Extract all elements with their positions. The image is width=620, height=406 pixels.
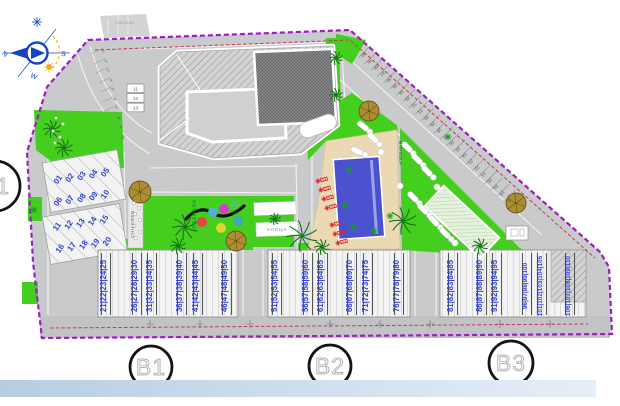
circle xyxy=(515,202,517,204)
playground-equipment-dot xyxy=(219,204,229,214)
pool xyxy=(333,156,384,239)
garage-block-b2 xyxy=(268,250,410,317)
playground-equipment-dot xyxy=(197,217,207,227)
compass-w-label: W xyxy=(29,72,38,81)
parking-number: 86|87|88|89|90 xyxy=(475,259,484,312)
street-rect-label: УЛИЦА xyxy=(267,227,287,233)
parking-number: 12 xyxy=(133,96,139,101)
axis-circle-left-label: B1 xyxy=(0,173,10,199)
site-plan-drawing: 12345678910 111213 010203040506070809101… xyxy=(0,0,620,406)
parking-number: 11 xyxy=(133,86,138,91)
parking-number: 41|42|43|44|45 xyxy=(191,259,200,312)
parking-number: 36|37|38|39|40 xyxy=(175,259,184,312)
parking-number: 51|52|53|54|55 xyxy=(270,259,279,312)
minigolf-lane xyxy=(378,149,384,155)
bush-icon xyxy=(342,202,349,209)
pebble xyxy=(62,123,65,126)
pebble xyxy=(139,231,142,234)
sun-icon xyxy=(44,62,55,73)
bush-icon xyxy=(350,224,357,231)
children-label: CHILDREN xyxy=(130,210,135,238)
compass-rose: N S W xyxy=(0,17,70,82)
circle xyxy=(368,110,370,112)
granada-label: GRANADA xyxy=(192,199,198,229)
axis-circle-b2-label: B2 xyxy=(315,353,345,379)
minigolf-lane xyxy=(434,184,440,190)
tree-icon xyxy=(359,101,379,121)
parking-number: 13 xyxy=(133,106,139,111)
axis-circle-b1-label: B1 xyxy=(136,354,166,380)
tree-icon xyxy=(129,181,151,203)
parking-number: 101|102|103|104|105 xyxy=(537,255,544,316)
parking-number: 106|107|108|109|110 xyxy=(565,256,572,317)
compass-n-label: N xyxy=(0,50,8,59)
minigolf-lane xyxy=(397,183,403,189)
parking-number: 31|32|33|34|35 xyxy=(145,259,154,312)
playground-equipment-dot xyxy=(208,207,218,217)
playground-equipment-dot xyxy=(233,216,243,226)
minigolf-label: MINIGOLF xyxy=(398,141,403,165)
footer-band xyxy=(0,380,596,397)
pebble xyxy=(59,136,62,139)
bush-icon xyxy=(371,228,378,235)
bush-icon xyxy=(31,207,38,214)
pebble xyxy=(55,117,58,120)
axis-circle-b3: B3 xyxy=(489,341,533,385)
bush-icon xyxy=(387,213,394,220)
parking-number: 46|47|48|49|50 xyxy=(220,259,229,312)
playground-equipment-dot xyxy=(216,223,226,233)
parking-number: 21|22|23|24|25 xyxy=(99,259,108,312)
pebble xyxy=(138,207,141,210)
garage-block-b1 xyxy=(98,250,238,317)
parking-number: 76|77|78|79|80 xyxy=(392,259,401,312)
compass-arrow-west xyxy=(10,48,27,59)
pebble xyxy=(133,202,136,205)
building-annex-dark xyxy=(254,49,336,125)
compass-star-icon xyxy=(32,17,42,27)
axis-circle-left: B1 xyxy=(0,161,20,211)
parking-number: 96|97|98|99|100 xyxy=(522,262,529,309)
pebble xyxy=(54,142,57,145)
parking-number: 61|62|63|64|65 xyxy=(316,259,325,312)
parking-number: 26|27|28|29|30 xyxy=(130,259,139,312)
utility-box xyxy=(506,226,528,240)
tree-icon xyxy=(226,231,246,251)
parking-number: 71|72|73|74|75 xyxy=(361,259,370,312)
minigolf-lane xyxy=(452,240,458,246)
pebble xyxy=(52,130,55,133)
pebble xyxy=(135,237,138,240)
axis-circle-b3-label: B3 xyxy=(496,350,526,376)
parking-number: 91|92|93|94|95 xyxy=(490,259,499,312)
outside-street-stub xyxy=(100,14,150,38)
compass-s-label: S xyxy=(60,51,66,59)
bush-icon xyxy=(346,167,353,174)
playground-equipment-dot xyxy=(230,200,240,210)
pebble xyxy=(139,219,142,222)
parking-number: 56|57|58|59|60 xyxy=(301,259,310,312)
parking-number: 81|82|83|84|85 xyxy=(446,259,455,312)
site-plan-page: 12345678910 111213 010203040506070809101… xyxy=(0,0,620,406)
top-note-label: МАГАЗИН xyxy=(116,21,135,25)
circle xyxy=(139,191,141,193)
circle xyxy=(235,240,237,242)
garage-blocks xyxy=(98,250,586,317)
parking-number: 66|67|68|69|70 xyxy=(345,259,354,312)
building-main xyxy=(160,46,339,158)
garage-box-numbers: 111213 xyxy=(127,84,144,112)
